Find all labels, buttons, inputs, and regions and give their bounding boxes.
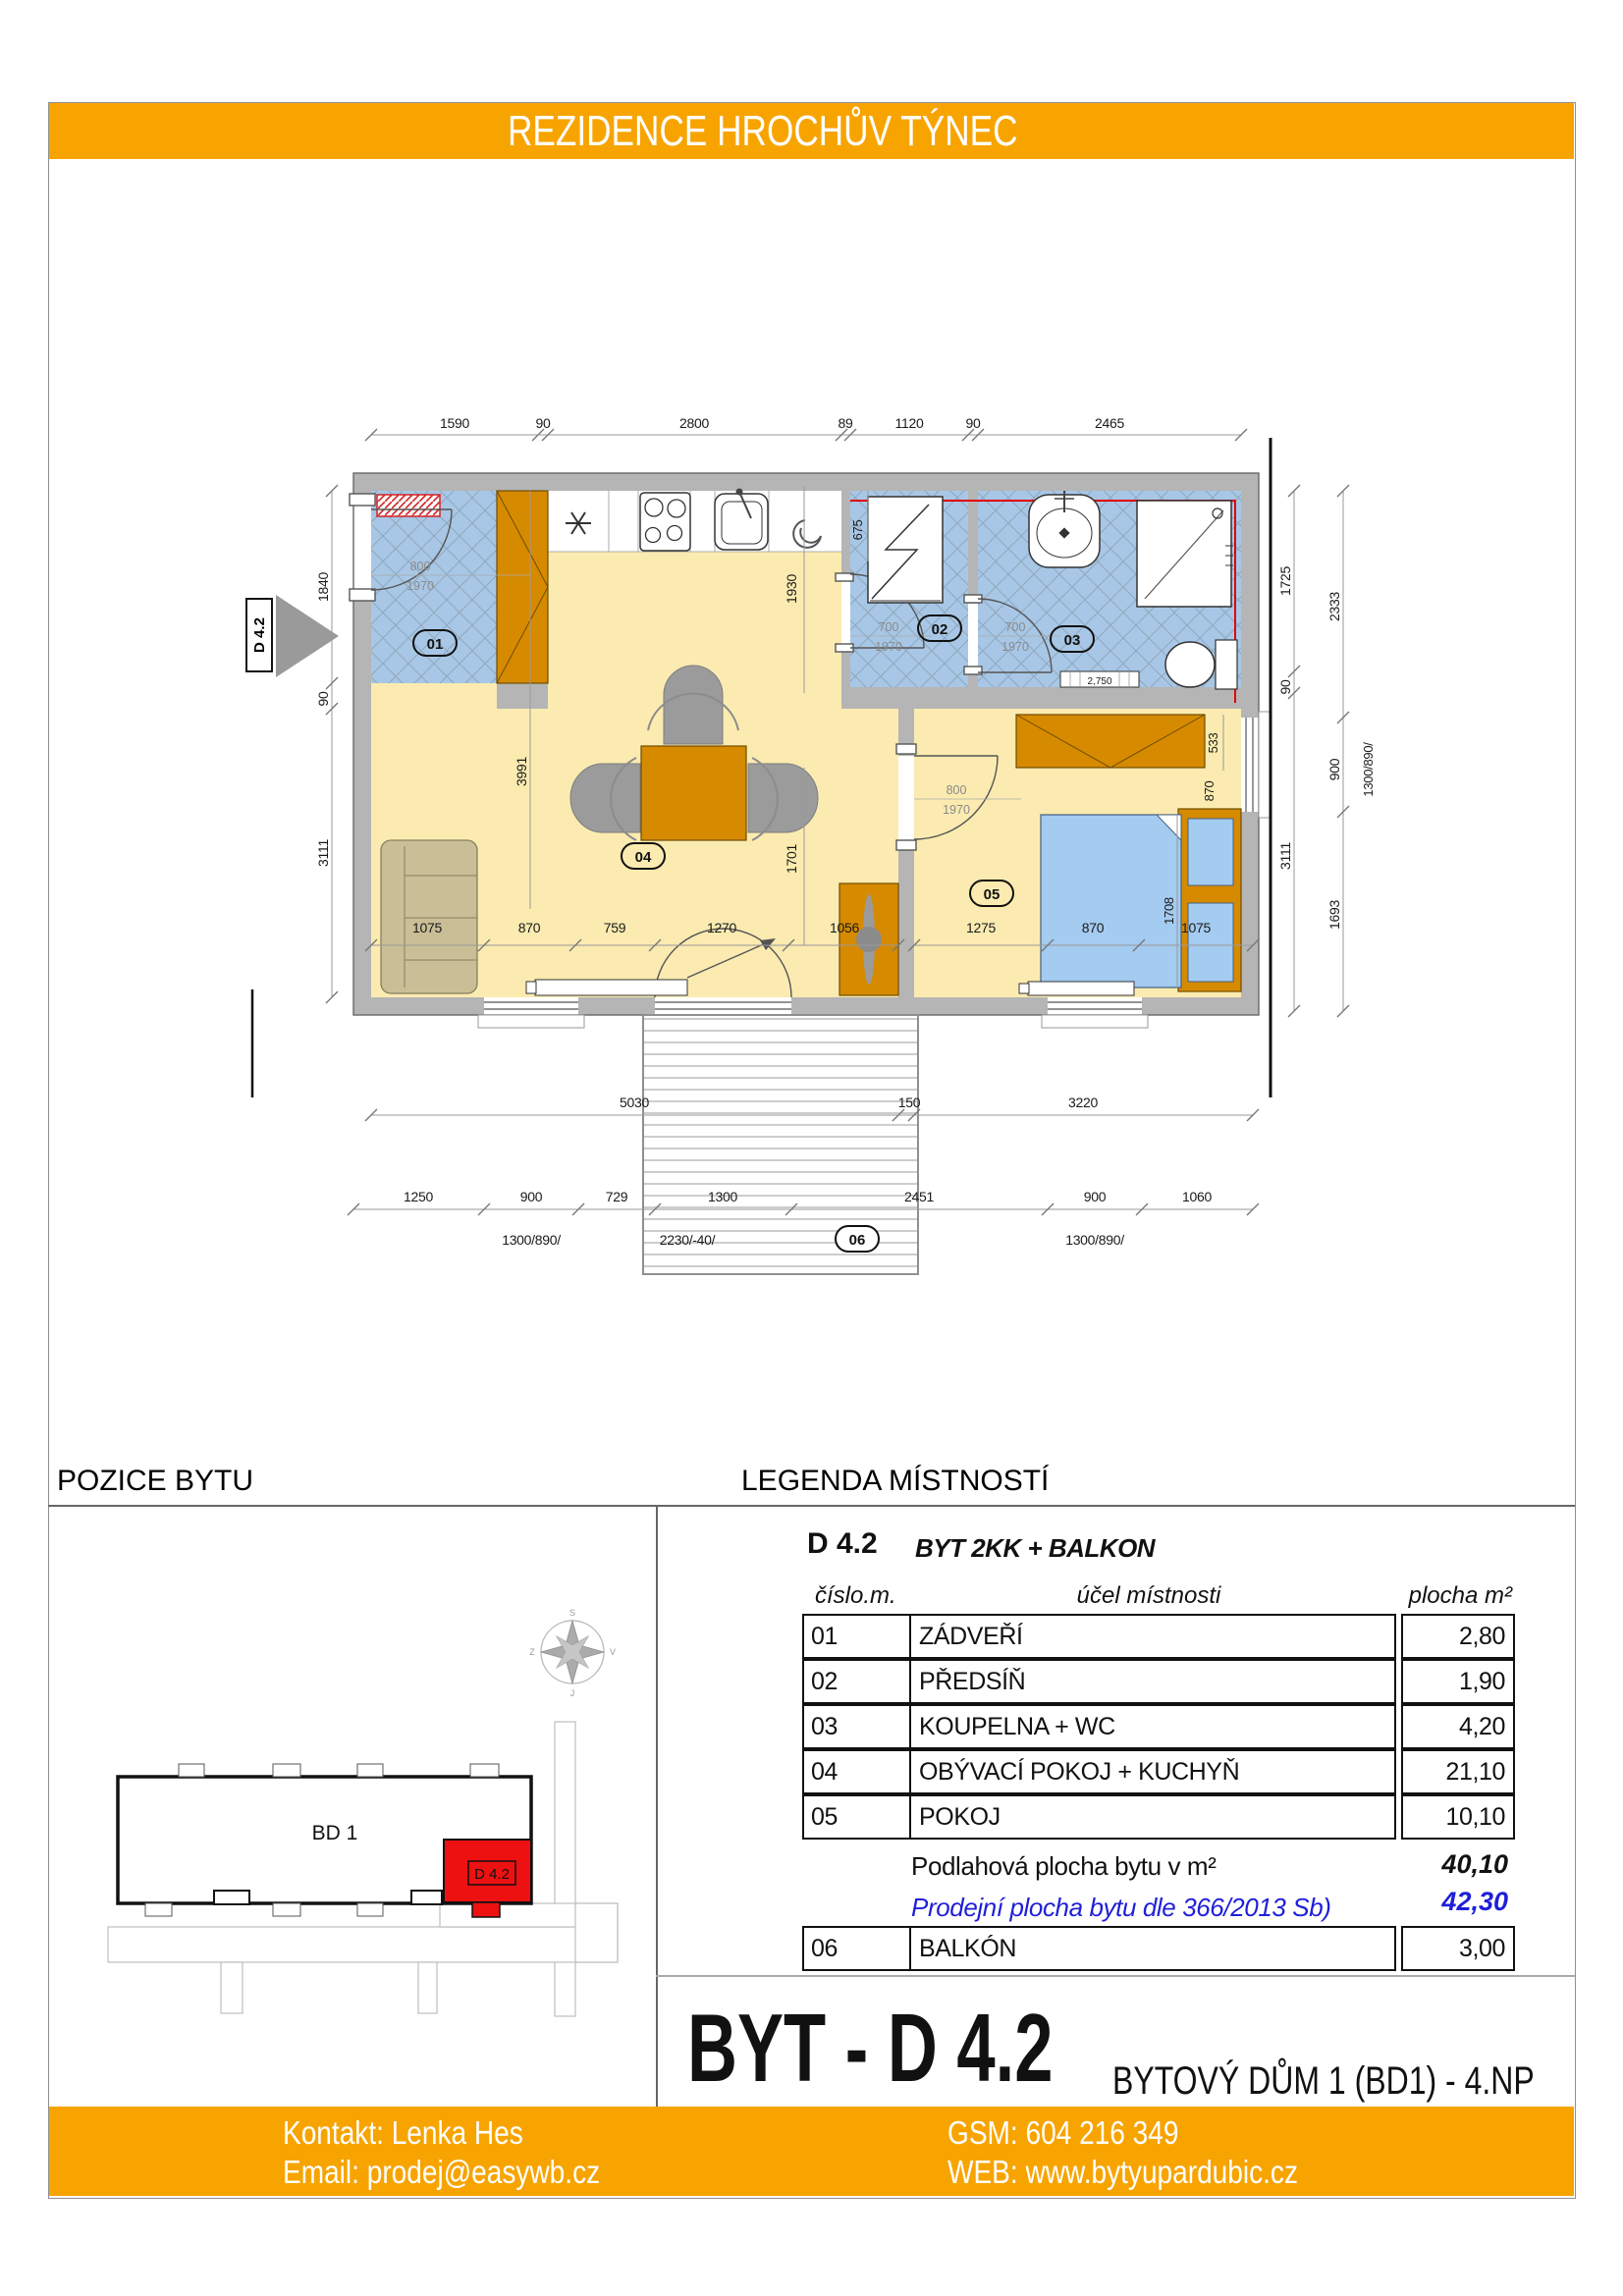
svg-text:900: 900 bbox=[1084, 1189, 1107, 1204]
bed bbox=[1041, 809, 1241, 991]
cell-name: PŘEDSÍŇ bbox=[909, 1659, 1396, 1704]
svg-text:2451: 2451 bbox=[904, 1189, 934, 1204]
badge-01: 01 bbox=[427, 636, 444, 653]
building-bd1: BD 1 D 4.2 bbox=[118, 1764, 531, 1917]
svg-text:3220: 3220 bbox=[1068, 1095, 1098, 1110]
cell-area: 1,90 bbox=[1401, 1659, 1515, 1704]
svg-text:900: 900 bbox=[520, 1189, 543, 1204]
col-header-ucel: účel místnosti bbox=[992, 1582, 1306, 1610]
cell-num: 04 bbox=[802, 1749, 911, 1794]
table-row: 02 PŘEDSÍŇ 1,90 bbox=[802, 1659, 1515, 1704]
building-label: BD 1 bbox=[312, 1822, 358, 1844]
svg-text:870: 870 bbox=[1202, 781, 1217, 802]
svg-text:90: 90 bbox=[1277, 679, 1293, 694]
header-band: REZIDENCE HROCHŮV TÝNEC bbox=[49, 103, 1574, 159]
dining-table bbox=[641, 746, 746, 840]
badge-06: 06 bbox=[849, 1232, 866, 1249]
svg-text:1300/890/: 1300/890/ bbox=[502, 1232, 561, 1248]
cell-area: 3,00 bbox=[1401, 1926, 1515, 1971]
badge-02: 02 bbox=[932, 621, 948, 638]
svg-text:2465: 2465 bbox=[1095, 415, 1124, 431]
wardrobe-05 bbox=[1016, 715, 1205, 768]
svg-text:1275: 1275 bbox=[966, 920, 996, 935]
table-row-balcony: 06 BALKÓN 3,00 bbox=[802, 1926, 1515, 1971]
svg-text:3991: 3991 bbox=[514, 757, 529, 786]
building-notch bbox=[411, 1891, 442, 1904]
summary-floor-value: 40,10 bbox=[1371, 1849, 1508, 1880]
cell-name: KOUPELNA + WC bbox=[909, 1704, 1396, 1749]
svg-text:1708: 1708 bbox=[1162, 897, 1176, 925]
footer-contact: Kontakt: Lenka Hes bbox=[283, 2114, 566, 2152]
svg-text:2230/-40/: 2230/-40/ bbox=[660, 1232, 716, 1248]
svg-text:1970: 1970 bbox=[875, 640, 902, 654]
footer-email: Email: prodej@easywb.cz bbox=[283, 2154, 656, 2191]
svg-text:1970: 1970 bbox=[943, 803, 970, 817]
footer-gsm: GSM: 604 216 349 bbox=[947, 2114, 1219, 2152]
section-marker: D 4.2 bbox=[246, 595, 339, 677]
cell-num: 01 bbox=[802, 1614, 911, 1659]
badge-05: 05 bbox=[984, 886, 1001, 903]
cell-num: 02 bbox=[802, 1659, 911, 1704]
building-floor-subtitle: BYTOVÝ DŮM 1 (BD1) - 4.NP bbox=[1112, 2059, 1623, 2104]
svg-text:150: 150 bbox=[898, 1095, 921, 1110]
svg-text:759: 759 bbox=[604, 920, 626, 935]
cell-area: 2,80 bbox=[1401, 1614, 1515, 1659]
svg-text:1693: 1693 bbox=[1326, 900, 1342, 930]
svg-text:2333: 2333 bbox=[1326, 592, 1342, 621]
svg-text:870: 870 bbox=[518, 920, 541, 935]
cell-name: BALKÓN bbox=[909, 1926, 1396, 1971]
table-row: 03 KOUPELNA + WC 4,20 bbox=[802, 1704, 1515, 1749]
svg-text:3111: 3111 bbox=[315, 839, 331, 867]
svg-text:3111: 3111 bbox=[1277, 842, 1293, 870]
svg-text:1970: 1970 bbox=[406, 579, 434, 593]
svg-text:533: 533 bbox=[1206, 733, 1220, 754]
cell-area: 10,10 bbox=[1401, 1794, 1515, 1840]
unit-label: D 4.2 bbox=[474, 1866, 510, 1883]
cell-area: 4,20 bbox=[1401, 1704, 1515, 1749]
svg-text:1300: 1300 bbox=[708, 1189, 737, 1204]
table-row: 01 ZÁDVEŘÍ 2,80 bbox=[802, 1614, 1515, 1659]
svg-text:1250: 1250 bbox=[404, 1189, 433, 1204]
svg-text:700: 700 bbox=[1005, 620, 1026, 634]
footer-band: Kontakt: Lenka Hes Email: prodej@easywb.… bbox=[49, 2107, 1574, 2196]
legend-type: BYT 2KK + BALKON bbox=[915, 1533, 1155, 1564]
svg-text:729: 729 bbox=[606, 1189, 628, 1204]
summary-sale-value: 42,30 bbox=[1371, 1887, 1508, 1917]
badge-04: 04 bbox=[635, 849, 652, 866]
svg-text:800: 800 bbox=[410, 560, 431, 573]
toilet-icon bbox=[1165, 640, 1237, 689]
entry-wardrobe bbox=[497, 491, 548, 683]
svg-text:675: 675 bbox=[850, 520, 865, 541]
svg-text:1120: 1120 bbox=[895, 415, 924, 431]
svg-text:89: 89 bbox=[839, 415, 853, 431]
col-header-plocha: plocha m² bbox=[1394, 1582, 1512, 1610]
table-row: 04 OBÝVACÍ POKOJ + KUCHYŇ 21,10 bbox=[802, 1749, 1515, 1794]
svg-text:J: J bbox=[570, 1688, 575, 1698]
svg-text:1725: 1725 bbox=[1277, 566, 1293, 596]
cell-name: OBÝVACÍ POKOJ + KUCHYŇ bbox=[909, 1749, 1396, 1794]
bath-sink-icon bbox=[1029, 491, 1100, 567]
pozice-title: POZICE BYTU bbox=[57, 1465, 253, 1498]
svg-text:900: 900 bbox=[1326, 758, 1342, 780]
compass-icon: S V J Z bbox=[529, 1608, 616, 1698]
divider-legend-title bbox=[656, 1975, 1575, 1977]
tv-bench-04 bbox=[526, 980, 687, 995]
svg-text:90: 90 bbox=[536, 415, 551, 431]
stove-icon bbox=[640, 493, 690, 551]
svg-text:1056: 1056 bbox=[830, 920, 859, 935]
sofa bbox=[381, 840, 477, 993]
cell-num: 05 bbox=[802, 1794, 911, 1840]
divider-vertical bbox=[656, 1505, 658, 2107]
radiator-label: 2,750 bbox=[1087, 676, 1111, 687]
cell-num: 03 bbox=[802, 1704, 911, 1749]
doormat bbox=[377, 495, 440, 516]
svg-text:1075: 1075 bbox=[412, 920, 442, 935]
cell-name: ZÁDVEŘÍ bbox=[909, 1614, 1396, 1659]
site-plan: S V J Z BD 1 D 4.2 bbox=[88, 1531, 638, 2101]
svg-text:1701: 1701 bbox=[784, 844, 799, 874]
right-window-size: 1300/890/ bbox=[1361, 742, 1376, 797]
svg-text:1930: 1930 bbox=[784, 574, 799, 604]
svg-text:D 4.2: D 4.2 bbox=[251, 617, 268, 653]
floor-plan: 2,750 bbox=[226, 402, 1453, 1286]
svg-text:1060: 1060 bbox=[1182, 1189, 1212, 1204]
cell-name: POKOJ bbox=[909, 1794, 1396, 1840]
washing-machine-icon bbox=[868, 497, 943, 603]
svg-text:V: V bbox=[610, 1647, 616, 1657]
sink-icon bbox=[715, 489, 768, 551]
building-notch bbox=[214, 1891, 249, 1904]
svg-text:90: 90 bbox=[315, 691, 331, 706]
svg-text:5030: 5030 bbox=[620, 1095, 649, 1110]
svg-text:1590: 1590 bbox=[440, 415, 469, 431]
col-header-cislo: číslo.m. bbox=[815, 1582, 896, 1610]
legenda-title: LEGENDA MÍSTNOSTÍ bbox=[741, 1465, 1049, 1498]
radiator: 2,750 bbox=[1060, 671, 1139, 687]
svg-text:1840: 1840 bbox=[315, 572, 331, 602]
legend-code: D 4.2 bbox=[807, 1527, 878, 1561]
svg-text:1300/890/: 1300/890/ bbox=[1065, 1232, 1124, 1248]
svg-text:700: 700 bbox=[879, 620, 899, 634]
shower-icon bbox=[1137, 501, 1233, 607]
svg-text:Z: Z bbox=[529, 1647, 535, 1657]
svg-text:90: 90 bbox=[966, 415, 981, 431]
summary-floor-label: Podlahová plocha bytu v m² bbox=[911, 1851, 1216, 1882]
table-row: 05 POKOJ 10,10 bbox=[802, 1794, 1515, 1840]
svg-text:800: 800 bbox=[947, 783, 967, 797]
cell-area: 21,10 bbox=[1401, 1749, 1515, 1794]
svg-text:870: 870 bbox=[1082, 920, 1105, 935]
svg-text:1270: 1270 bbox=[707, 920, 736, 935]
cell-num: 06 bbox=[802, 1926, 911, 1971]
cabinet-04 bbox=[839, 883, 898, 995]
svg-text:1970: 1970 bbox=[1001, 640, 1029, 654]
svg-text:2800: 2800 bbox=[679, 415, 709, 431]
footer-web: WEB: www.bytyupardubic.cz bbox=[947, 2154, 1360, 2191]
summary-sale-label: Prodejní plocha bytu dle 366/2013 Sb) bbox=[911, 1893, 1331, 1923]
page-title: REZIDENCE HROCHŮV TÝNEC bbox=[508, 103, 1018, 159]
nightstand bbox=[1188, 819, 1233, 885]
tv-bench-05 bbox=[1019, 982, 1134, 995]
divider-horizontal bbox=[48, 1505, 1575, 1507]
svg-text:1075: 1075 bbox=[1181, 920, 1211, 935]
svg-text:S: S bbox=[569, 1608, 575, 1618]
nightstand bbox=[1188, 903, 1233, 982]
badge-03: 03 bbox=[1064, 632, 1081, 649]
